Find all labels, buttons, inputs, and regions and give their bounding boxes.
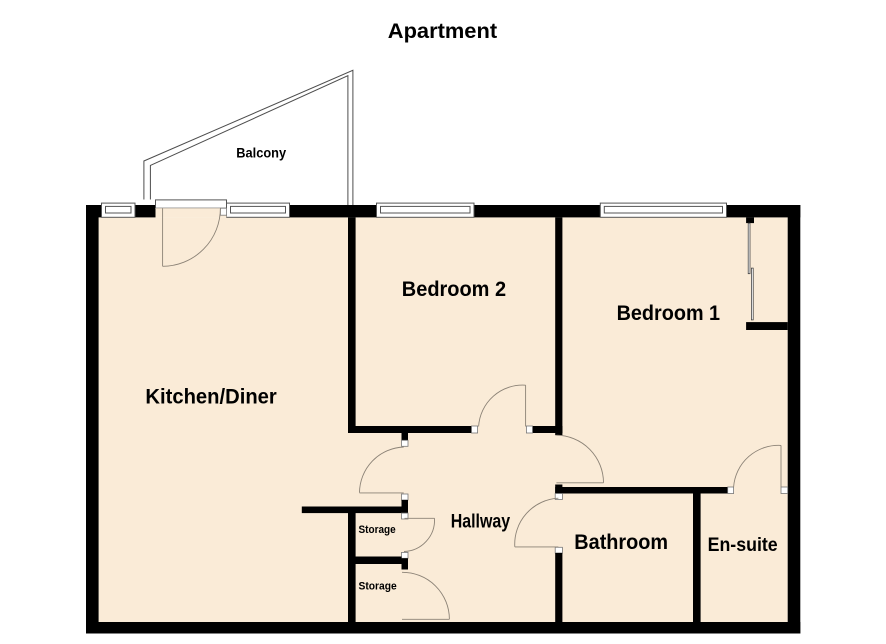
svg-text:Bathroom: Bathroom: [574, 530, 668, 554]
svg-text:Storage: Storage: [359, 580, 397, 592]
svg-text:Balcony: Balcony: [236, 145, 286, 161]
svg-text:En-suite: En-suite: [708, 534, 778, 556]
svg-text:Hallway: Hallway: [451, 512, 511, 533]
svg-text:Bedroom 2: Bedroom 2: [402, 277, 506, 301]
svg-text:Bedroom 1: Bedroom 1: [617, 301, 721, 325]
svg-text:Kitchen/Diner: Kitchen/Diner: [145, 384, 277, 408]
svg-text:Storage: Storage: [359, 524, 396, 536]
svg-text:Apartment: Apartment: [388, 19, 497, 43]
